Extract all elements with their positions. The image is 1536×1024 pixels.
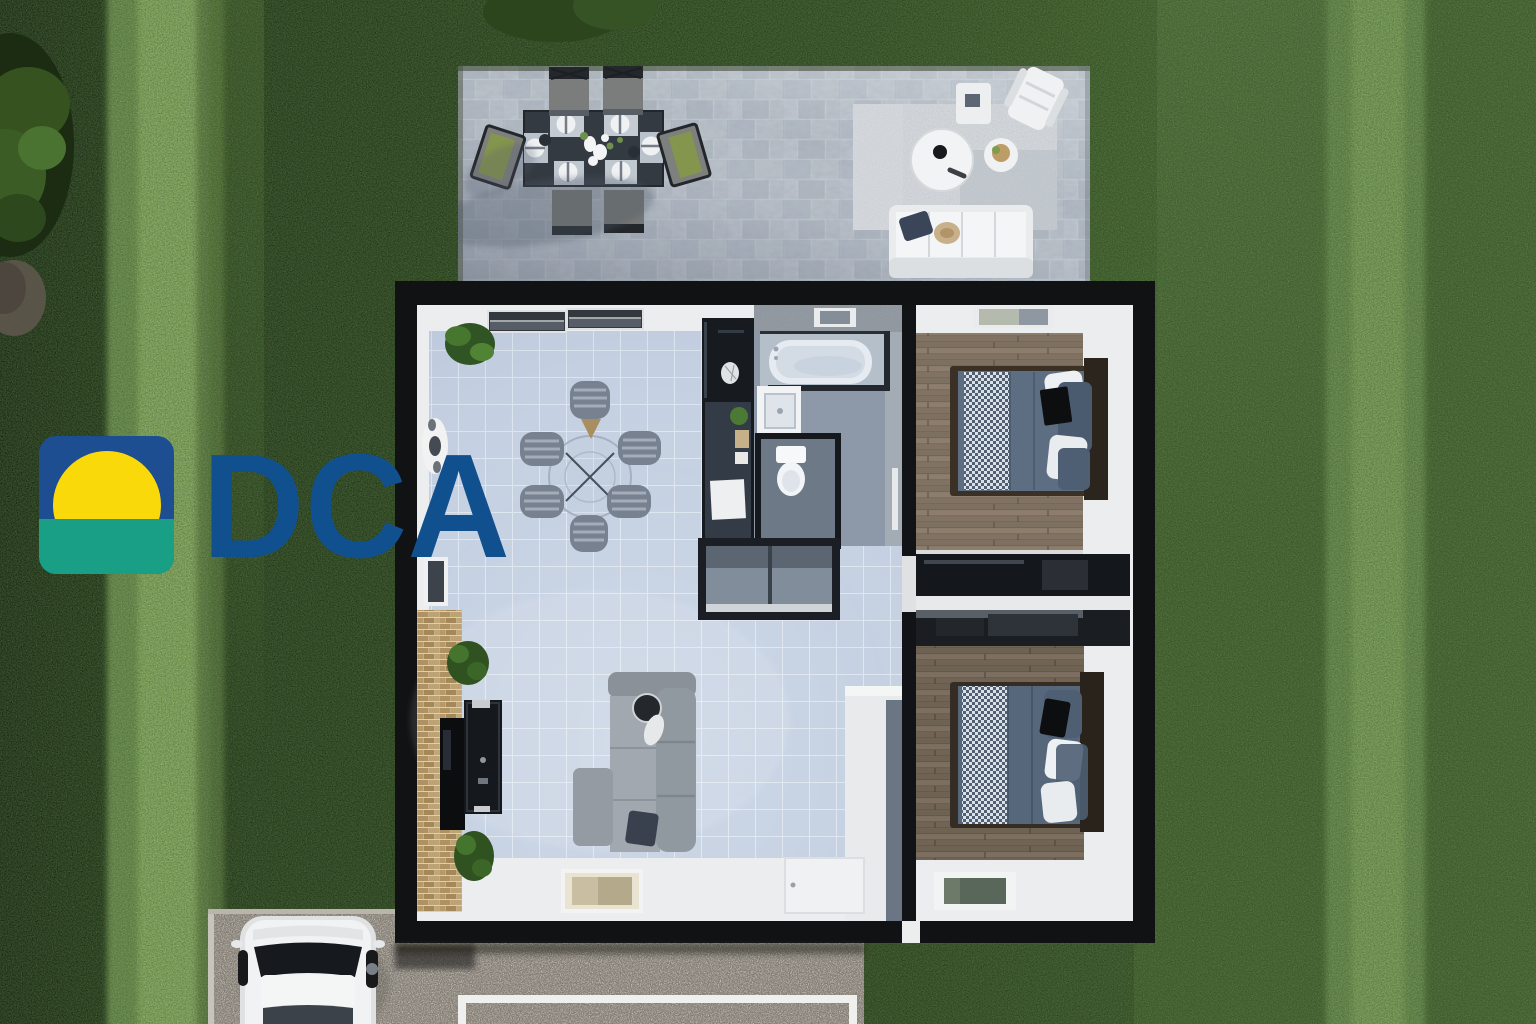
svg-text:DCA: DCA — [202, 424, 510, 589]
